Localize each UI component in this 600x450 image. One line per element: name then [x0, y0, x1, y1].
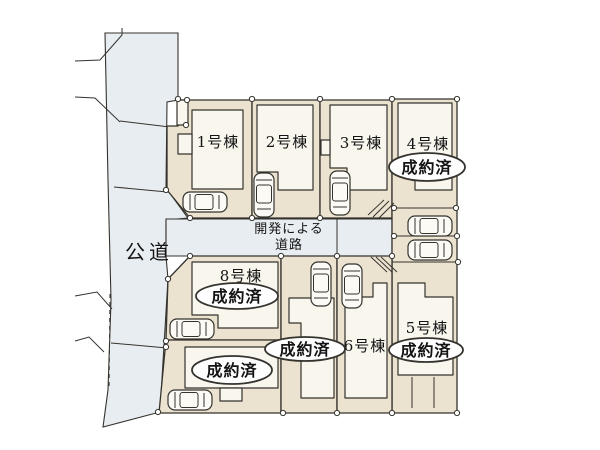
- sold-badge-lot-4: 成約済: [389, 153, 465, 181]
- lot-2-label: 2号棟: [266, 133, 309, 151]
- sold-badge-lot-4-text: 成約済: [401, 158, 452, 177]
- site-plan-drawing: 1号棟 2号棟 3号棟 4号棟 5号棟 6号棟 8号棟 成約済 成約済 成約済 …: [0, 0, 600, 450]
- lot-3-label: 3号棟: [340, 134, 383, 152]
- development-road-label-line2: 道路: [275, 237, 303, 253]
- sold-badge-lot-8-text: 成約済: [211, 287, 262, 306]
- lot-3-garage: [321, 140, 330, 155]
- lot-1-garage: [178, 134, 192, 154]
- utility-box: [177, 100, 188, 125]
- sold-badge-lot-5-text: 成約済: [400, 341, 451, 360]
- lot-left-building-annex: [220, 388, 242, 401]
- site-plan: 1号棟 2号棟 3号棟 4号棟 5号棟 6号棟 8号棟 成約済 成約済 成約済 …: [0, 0, 600, 450]
- sold-badge-lot-mid-text: 成約済: [279, 340, 330, 359]
- development-road-label-line1: 開発による: [254, 222, 324, 237]
- car-icon: [170, 319, 214, 339]
- car-icon: [408, 216, 452, 236]
- lot-1-label: 1号棟: [197, 133, 240, 151]
- car-icon: [408, 240, 452, 260]
- lot-4-label: 4号棟: [407, 135, 450, 153]
- car-icon: [330, 171, 350, 215]
- sold-badge-lot-5: 成約済: [389, 338, 463, 362]
- car-icon: [168, 390, 212, 410]
- car-icon: [183, 192, 227, 212]
- sold-badge-lot-left-text: 成約済: [206, 361, 257, 380]
- sold-badge-lot-8: 成約済: [196, 283, 278, 309]
- car-icon: [342, 264, 362, 308]
- sold-badge-lot-left: 成約済: [192, 356, 272, 384]
- lot-6-label: 6号棟: [344, 337, 387, 355]
- sold-badge-lot-mid: 成約済: [265, 337, 345, 361]
- car-icon: [254, 173, 274, 217]
- lot-5-label: 5号棟: [406, 319, 449, 337]
- public-road-label: 公道: [125, 240, 173, 264]
- car-icon: [311, 262, 331, 306]
